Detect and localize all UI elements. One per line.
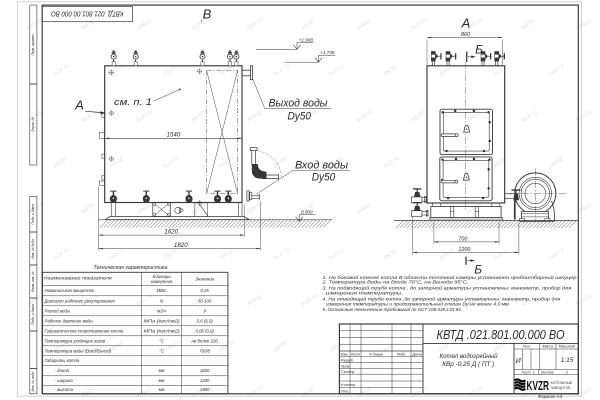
svg-text:см. п. 1: см. п. 1: [114, 97, 152, 108]
svg-text:1200: 1200: [458, 247, 470, 253]
svg-text:КВТД .021.801.00.000 ВО: КВТД .021.801.00.000 ВО: [437, 327, 565, 342]
svg-text:+1.735: +1.735: [320, 50, 335, 55]
svg-text:Температура уходящих газов: Температура уходящих газов: [45, 338, 106, 343]
svg-text:измерения: измерения: [151, 279, 173, 284]
svg-text:мм: мм: [159, 378, 165, 383]
svg-text:2. Температура Воды на Входе: 2. Температура Воды на Входе 70°С, на Вы…: [321, 280, 468, 285]
svg-text:+1.900: +1.900: [299, 37, 314, 42]
svg-text:Подп.: Подп.: [397, 353, 407, 357]
svg-text:Перв. примен.: Перв. примен.: [31, 34, 35, 56]
svg-text:Изм.: Изм.: [341, 353, 349, 357]
svg-text:Dy50: Dy50: [287, 111, 311, 123]
svg-text:Расход воды: Расход воды: [45, 308, 71, 313]
svg-text:70/95: 70/95: [199, 348, 210, 353]
svg-text:Подп. и дата: Подп. и дата: [31, 204, 35, 225]
svg-text:Котел водогрейный: Котел водогрейный: [440, 353, 499, 360]
svg-text:Масштаб: Масштаб: [559, 345, 576, 349]
svg-text:м3/ч: м3/ч: [157, 308, 167, 313]
svg-text:860: 860: [461, 32, 470, 38]
svg-text:0.000: 0.000: [301, 209, 313, 214]
svg-text:Справ. №: Справ. №: [31, 117, 35, 132]
svg-text:МПа (кгс/см2): МПа (кгс/см2): [144, 318, 181, 323]
svg-text:1620: 1620: [164, 229, 178, 236]
svg-text:Т.контр.: Т.контр.: [341, 370, 356, 374]
svg-text:измерения температуры и предох: измерения температуры и предохранительны…: [326, 301, 510, 307]
svg-text:Рабочее давление воды: Рабочее давление воды: [45, 318, 94, 323]
svg-text:не более 220: не более 220: [192, 338, 219, 343]
svg-text:Масса: Масса: [543, 345, 553, 349]
svg-text:1820: 1820: [174, 242, 188, 249]
svg-text:0,6 (6,0): 0,6 (6,0): [197, 318, 214, 323]
svg-text:Подп. и дата: Подп. и дата: [31, 304, 35, 325]
svg-text:50-100: 50-100: [198, 298, 212, 303]
svg-text:КВТД .021.801.00.000 ВО: КВТД .021.801.00.000 ВО: [51, 9, 124, 18]
svg-text:Лист: Лист: [350, 353, 360, 357]
svg-text:Диапазон рабочего регулировани: Диапазон рабочего регулирования: [44, 298, 116, 303]
svg-text:2: 2: [565, 370, 568, 374]
svg-text:Номинальная мощность: Номинальная мощность: [45, 288, 96, 293]
svg-text:0,25: 0,25: [200, 288, 209, 293]
svg-text:Листов: Листов: [540, 370, 554, 374]
svg-text:А: А: [461, 16, 471, 31]
svg-text:МПа (кгс/см2): МПа (кгс/см2): [144, 328, 181, 333]
svg-text:Техническая характеристика: Техническая характеристика: [94, 265, 168, 271]
svg-text:- ширина: - ширина: [55, 378, 74, 383]
svg-text:- длина: - длина: [55, 368, 70, 373]
svg-text:Разраб.: Разраб.: [341, 359, 354, 363]
svg-text:3. На подводящей трубе котла: 3. На подводящей трубе котла , до запорн…: [322, 284, 571, 290]
svg-text:ЗАВОД РЭП: ЗАВОД РЭП: [551, 386, 571, 390]
svg-text:0,06 (0,6): 0,06 (0,6): [195, 328, 214, 333]
svg-text:Вход воды: Вход воды: [295, 159, 348, 171]
svg-text:мм: мм: [159, 368, 165, 373]
svg-text:Лист: Лист: [521, 370, 531, 374]
svg-text:Гидравлическое сопротивление к: Гидравлическое сопротивление котла: [45, 328, 125, 333]
svg-text:Лит.: Лит.: [522, 345, 531, 349]
svg-text:Значение: Значение: [195, 277, 214, 282]
svg-text:- высота: - высота: [55, 387, 74, 392]
svg-text:МВт: МВт: [157, 288, 167, 293]
svg-text:1:15: 1:15: [561, 357, 574, 364]
svg-text:4. На отводящей трубе котла ,: 4. На отводящей трубе котла ,до запорной…: [322, 295, 561, 301]
svg-text:Утв.: Утв.: [341, 389, 349, 393]
svg-text:мм: мм: [159, 387, 165, 392]
svg-text:N докум.: N докум.: [369, 353, 384, 357]
svg-text:Dy50: Dy50: [312, 172, 336, 184]
svg-text:Габариты котла: Габариты котла: [45, 358, 80, 363]
svg-text:Выход воды: Выход воды: [269, 98, 328, 110]
svg-text:1900: 1900: [200, 387, 210, 392]
svg-text:5. Остальные технические треб: 5. Остальные технические требования по О…: [322, 307, 462, 312]
svg-text:Наименование показателя: Наименование показателя: [44, 276, 113, 281]
svg-text:1540: 1540: [166, 132, 180, 139]
svg-text:KVZR: KVZR: [527, 378, 550, 393]
svg-text:Дата: Дата: [411, 353, 421, 357]
svg-text:%: %: [160, 298, 164, 303]
svg-text:КВр -0,25 Д ( ПТ ): КВр -0,25 Д ( ПТ ): [442, 361, 494, 368]
svg-text:Взам. инв. №: Взам. инв. №: [31, 271, 35, 292]
svg-text:КОТЕЛЬНЫЙ: КОТЕЛЬНЫЙ: [551, 381, 573, 385]
svg-text:Инв. № подл.: Инв. № подл.: [31, 371, 35, 392]
svg-text:1200: 1200: [200, 378, 210, 383]
svg-text:измерения температуры.: измерения температуры.: [326, 291, 403, 296]
svg-text:А: А: [74, 98, 84, 113]
svg-text:700: 700: [458, 236, 467, 242]
svg-text:1820: 1820: [200, 368, 210, 373]
svg-text:1: 1: [533, 370, 535, 374]
svg-text:Пров.: Пров.: [341, 364, 350, 368]
svg-text:Н.контр.: Н.контр.: [341, 383, 356, 387]
svg-text:Температура воды (Вход/Выход): Температура воды (Вход/Выход): [45, 348, 112, 353]
svg-text:Формат А3: Формат А3: [538, 394, 563, 399]
svg-text:Инв. № дубл.: Инв. № дубл.: [31, 238, 35, 258]
svg-text:В: В: [203, 7, 212, 22]
